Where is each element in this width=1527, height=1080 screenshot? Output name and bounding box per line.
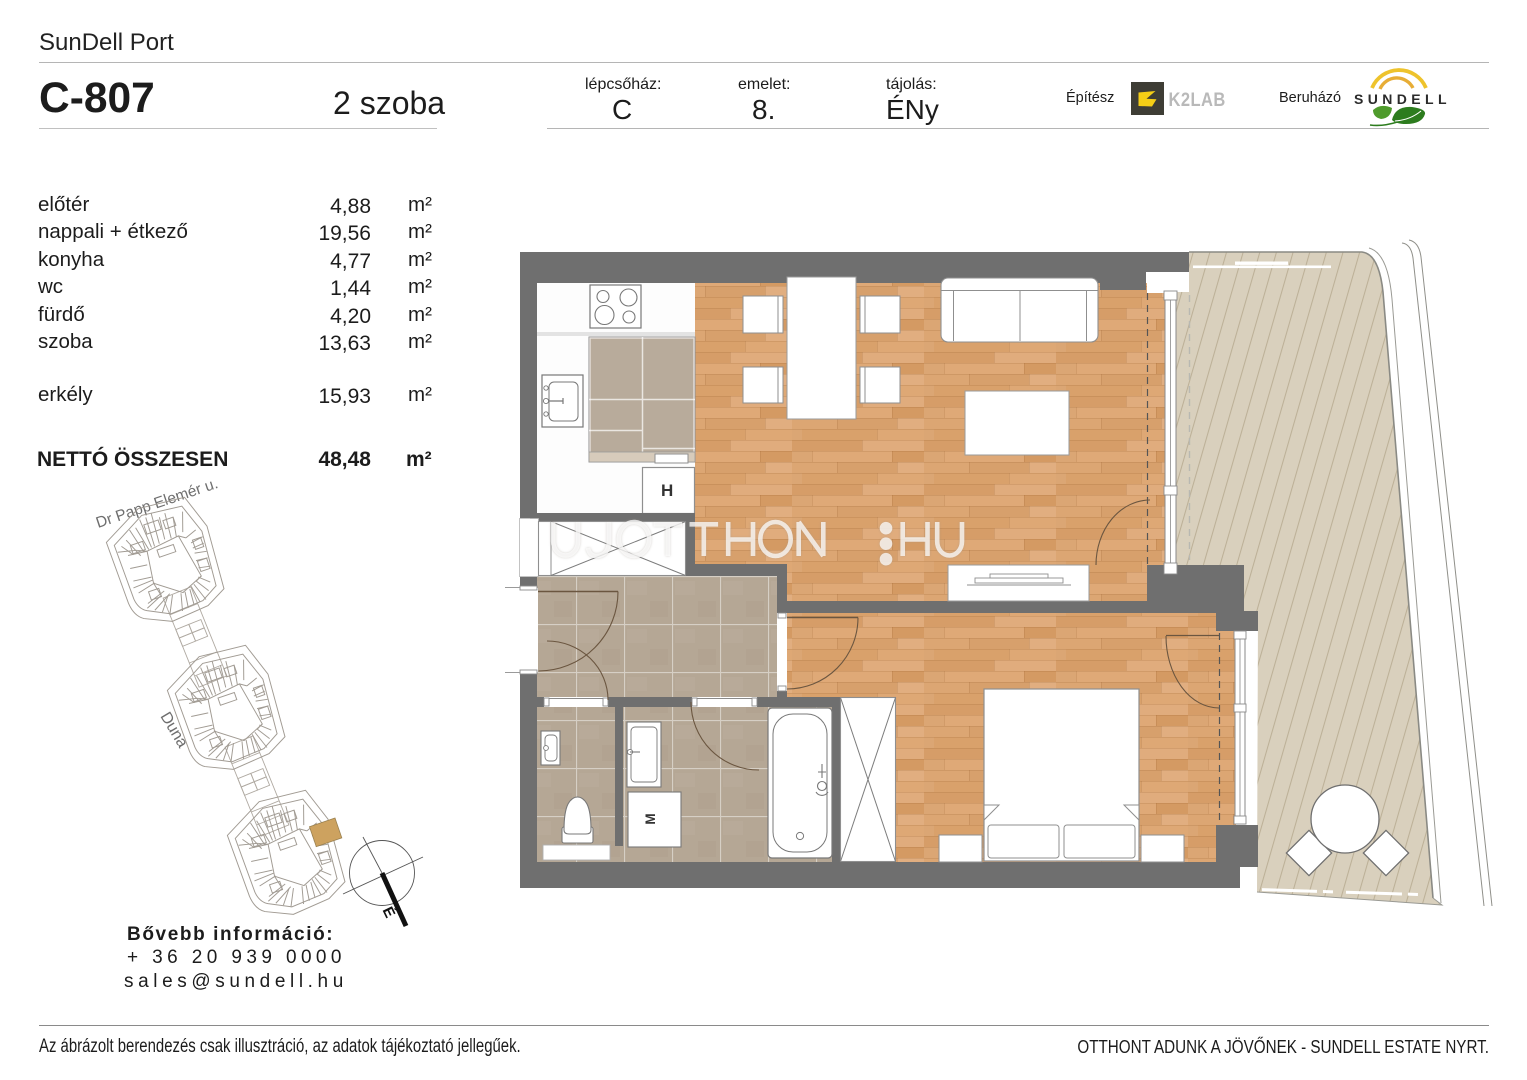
svg-text:H: H [661,481,673,500]
svg-text:M: M [643,813,658,824]
